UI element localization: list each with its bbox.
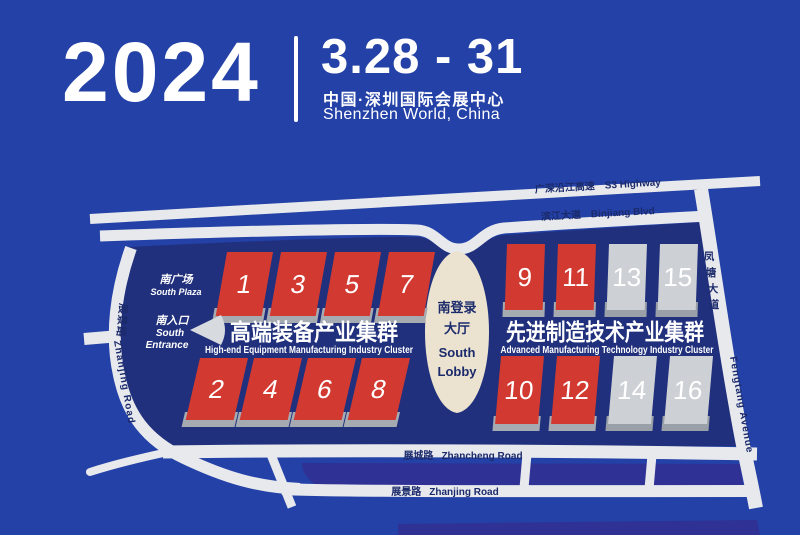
svg-text:大: 大 (708, 282, 719, 295)
event-map-poster: 2024 3.28 - 31 中国·深圳国际会展中心 Shenzhen Worl… (0, 0, 800, 535)
hall-10: 10 (492, 356, 546, 431)
south-entrance-en1: South (156, 328, 184, 339)
lobby-label-en2: Lobby (438, 364, 478, 379)
left-cluster-title-en: High-end Equipment Manufacturing Industr… (205, 345, 413, 356)
label-zhanjing-road-bottom: 展景路Zhanjing Road (391, 485, 498, 498)
lobby-label-en1: South (439, 345, 476, 360)
road-connector-slant (270, 452, 292, 507)
lobby-label-cn1: 南登录 (437, 300, 476, 315)
svg-text:16: 16 (672, 375, 704, 405)
hall-16: 16 (661, 356, 715, 431)
left-cluster-title-cn: 高端装备产业集群 (230, 319, 398, 345)
venue-name-en: Shenzhen World, China (323, 106, 500, 124)
hall-14: 14 (605, 356, 659, 431)
svg-text:凤: 凤 (704, 251, 715, 263)
svg-text:10: 10 (503, 375, 535, 405)
road-connector-mid (524, 454, 527, 488)
svg-text:15: 15 (663, 262, 693, 292)
header-divider (294, 36, 298, 122)
hall-15: 15 (655, 244, 700, 317)
road-connector-right (649, 455, 652, 489)
hall-9: 9 (502, 244, 547, 317)
svg-text:11: 11 (562, 262, 590, 292)
bottom-median-strip (398, 520, 760, 535)
road-ramp (90, 452, 168, 472)
right-cluster-title-cn: 先进制造技术产业集群 (506, 319, 704, 345)
lobby-label-cn2: 大厅 (444, 321, 470, 336)
hall-13: 13 (604, 244, 649, 317)
label-zhancheng-road: 展城路Zhancheng Road (403, 449, 522, 462)
right-cluster-title-en: Advanced Manufacturing Technology Indust… (501, 345, 714, 356)
svg-text:13: 13 (612, 262, 642, 292)
svg-text:塘: 塘 (706, 266, 717, 279)
year-title: 2024 (62, 30, 261, 114)
south-entrance-cn: 南入口 (156, 314, 190, 327)
hall-12: 12 (548, 356, 602, 431)
svg-text:12: 12 (559, 375, 591, 405)
hall-11: 11 (553, 244, 598, 317)
svg-text:14: 14 (616, 375, 648, 405)
svg-text:9: 9 (517, 262, 533, 292)
road-zhanjing-bottom (282, 489, 755, 491)
south-entrance-en2: Entrance (146, 340, 189, 351)
svg-text:道: 道 (709, 298, 720, 311)
south-plaza-en: South Plaza (150, 287, 201, 297)
event-dates: 3.28 - 31 (321, 33, 523, 82)
south-plaza-cn: 南广场 (160, 273, 195, 286)
